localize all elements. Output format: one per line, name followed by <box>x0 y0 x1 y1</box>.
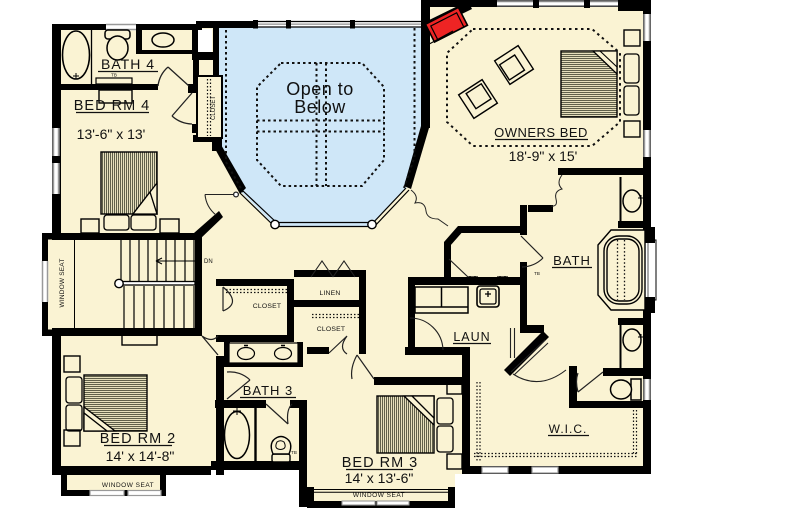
svg-text:CLOSET: CLOSET <box>253 303 281 310</box>
svg-text:TB: TB <box>111 73 117 78</box>
svg-text:WINDOW SEAT: WINDOW SEAT <box>102 482 154 489</box>
svg-text:BATH 4: BATH 4 <box>101 56 155 72</box>
svg-text:BATH 3: BATH 3 <box>243 383 294 398</box>
svg-text:TB: TB <box>534 271 540 276</box>
svg-text:OWNERS BED: OWNERS BED <box>494 125 588 140</box>
svg-text:TB: TB <box>291 450 297 455</box>
svg-text:BED RM 4: BED RM 4 <box>74 98 151 114</box>
svg-text:BED RM 2: BED RM 2 <box>100 431 177 447</box>
svg-text:13'-6" x 13': 13'-6" x 13' <box>77 126 146 142</box>
svg-text:CLOSET: CLOSET <box>317 326 345 333</box>
svg-text:Open to: Open to <box>286 79 354 99</box>
svg-text:Below: Below <box>294 97 346 117</box>
svg-text:WINDOW SEAT: WINDOW SEAT <box>353 492 405 499</box>
svg-text:LINEN: LINEN <box>319 290 340 297</box>
svg-text:18'-9" x 15': 18'-9" x 15' <box>509 148 578 164</box>
svg-text:LAUN: LAUN <box>453 330 490 344</box>
svg-text:14' x 13'-6": 14' x 13'-6" <box>345 470 414 486</box>
svg-text:BED RM 3: BED RM 3 <box>342 455 419 471</box>
svg-text:DN: DN <box>204 259 213 265</box>
svg-text:14' x 14'-8": 14' x 14'-8" <box>106 448 175 464</box>
svg-text:CLOSET: CLOSET <box>211 96 217 120</box>
svg-text:BATH: BATH <box>553 253 591 268</box>
svg-text:WINDOW SEAT: WINDOW SEAT <box>59 258 66 307</box>
svg-text:W.I.C.: W.I.C. <box>549 422 588 436</box>
